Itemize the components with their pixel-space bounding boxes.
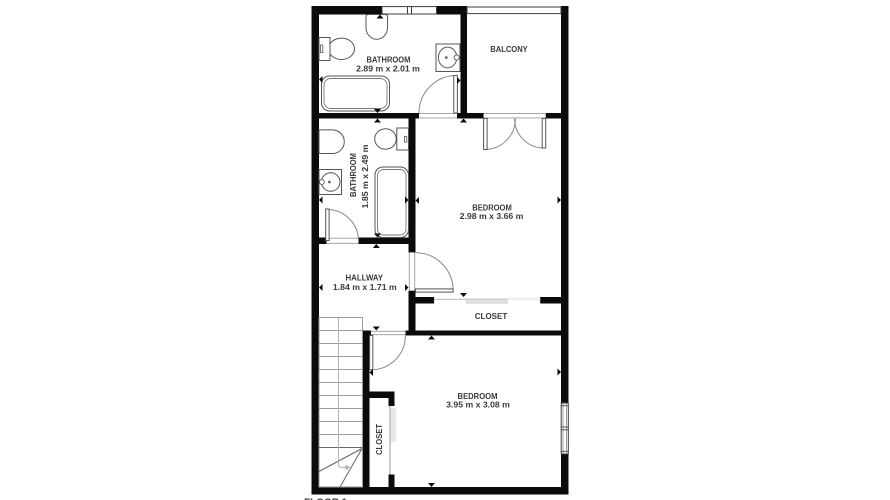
svg-text:CLOSET: CLOSET <box>375 424 385 455</box>
svg-text:CLOSET: CLOSET <box>475 311 507 321</box>
svg-text:1.84 m x 1.71 m: 1.84 m x 1.71 m <box>333 282 397 292</box>
svg-text:BATHROOM: BATHROOM <box>348 153 358 197</box>
svg-text:2.98 m x 3.66 m: 2.98 m x 3.66 m <box>460 211 524 221</box>
svg-text:3.95 m x 3.08 m: 3.95 m x 3.08 m <box>446 400 510 410</box>
svg-text:2.89 m x 2.01 m: 2.89 m x 2.01 m <box>356 64 420 74</box>
svg-text:1.85 m x 2.49 m: 1.85 m x 2.49 m <box>360 144 370 208</box>
svg-text:BALCONY: BALCONY <box>490 45 528 55</box>
